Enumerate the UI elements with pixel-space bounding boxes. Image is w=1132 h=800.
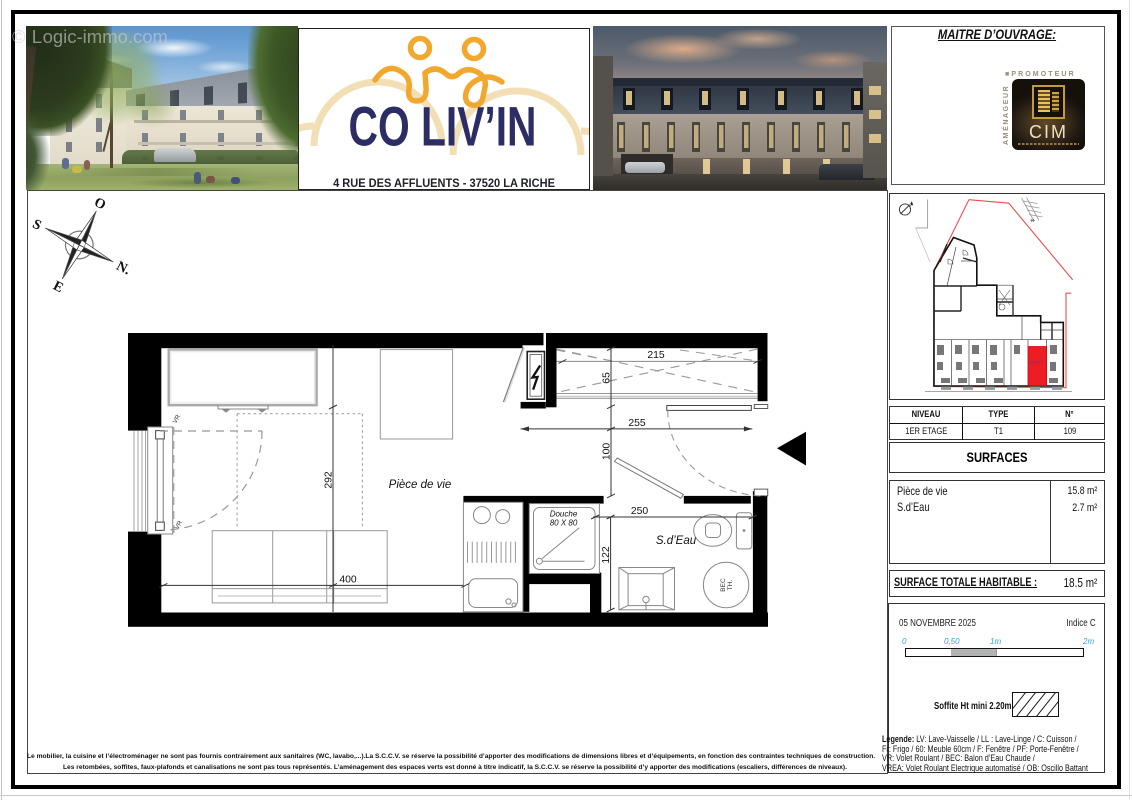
svg-text:80 X 80: 80 X 80 bbox=[550, 519, 578, 528]
svg-text:N.: N. bbox=[114, 259, 133, 279]
svg-text:250: 250 bbox=[631, 506, 649, 517]
svg-text:Pièce de vie: Pièce de vie bbox=[389, 479, 452, 491]
svg-text:255: 255 bbox=[628, 418, 646, 429]
svg-text:S: S bbox=[30, 217, 44, 234]
svg-text:VR: VR bbox=[174, 519, 185, 531]
svg-text:122: 122 bbox=[601, 546, 612, 564]
svg-text:215: 215 bbox=[647, 350, 665, 361]
svg-text:VR: VR bbox=[172, 413, 183, 425]
svg-text:Douche: Douche bbox=[550, 510, 578, 519]
svg-text:S.d’Eau: S.d’Eau bbox=[656, 535, 697, 547]
svg-text:E: E bbox=[50, 279, 65, 297]
svg-text:CO LIV’IN: CO LIV’IN bbox=[349, 95, 537, 158]
svg-text:O: O bbox=[91, 195, 108, 213]
svg-text:BECTH.: BECTH. bbox=[720, 578, 734, 592]
svg-text:400: 400 bbox=[339, 575, 357, 586]
svg-text:65: 65 bbox=[602, 372, 613, 384]
svg-text:109-T1: 109-T1 bbox=[1029, 360, 1044, 365]
svg-text:100: 100 bbox=[602, 443, 613, 461]
svg-text:292: 292 bbox=[324, 471, 335, 489]
